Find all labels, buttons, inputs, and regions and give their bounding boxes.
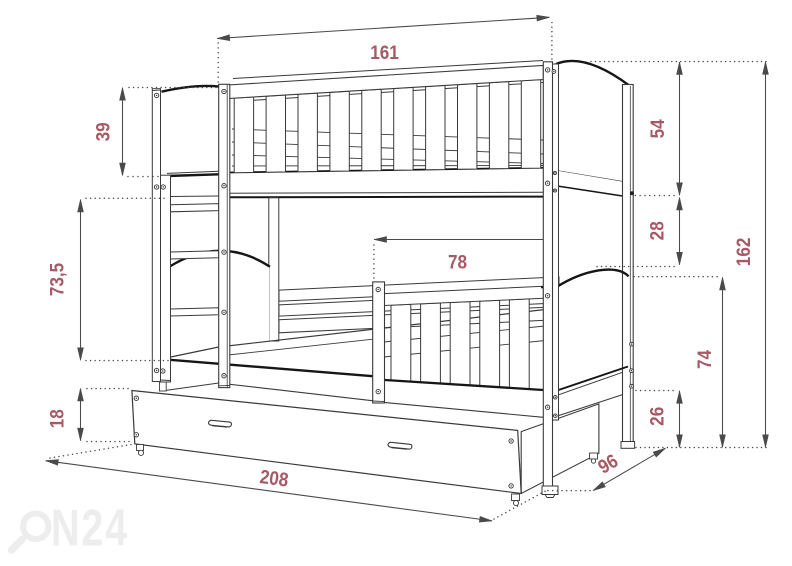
svg-text:54: 54: [646, 119, 668, 139]
svg-text:N24: N24: [51, 498, 129, 557]
svg-text:162: 162: [732, 238, 754, 267]
svg-text:78: 78: [448, 250, 467, 272]
svg-text:18: 18: [45, 409, 67, 428]
svg-text:26: 26: [645, 407, 667, 426]
svg-text:28: 28: [645, 221, 667, 240]
svg-text:208: 208: [259, 465, 290, 491]
svg-text:74: 74: [693, 349, 715, 369]
svg-text:161: 161: [370, 41, 399, 63]
svg-text:73,5: 73,5: [45, 263, 67, 296]
svg-text:39: 39: [91, 122, 113, 141]
